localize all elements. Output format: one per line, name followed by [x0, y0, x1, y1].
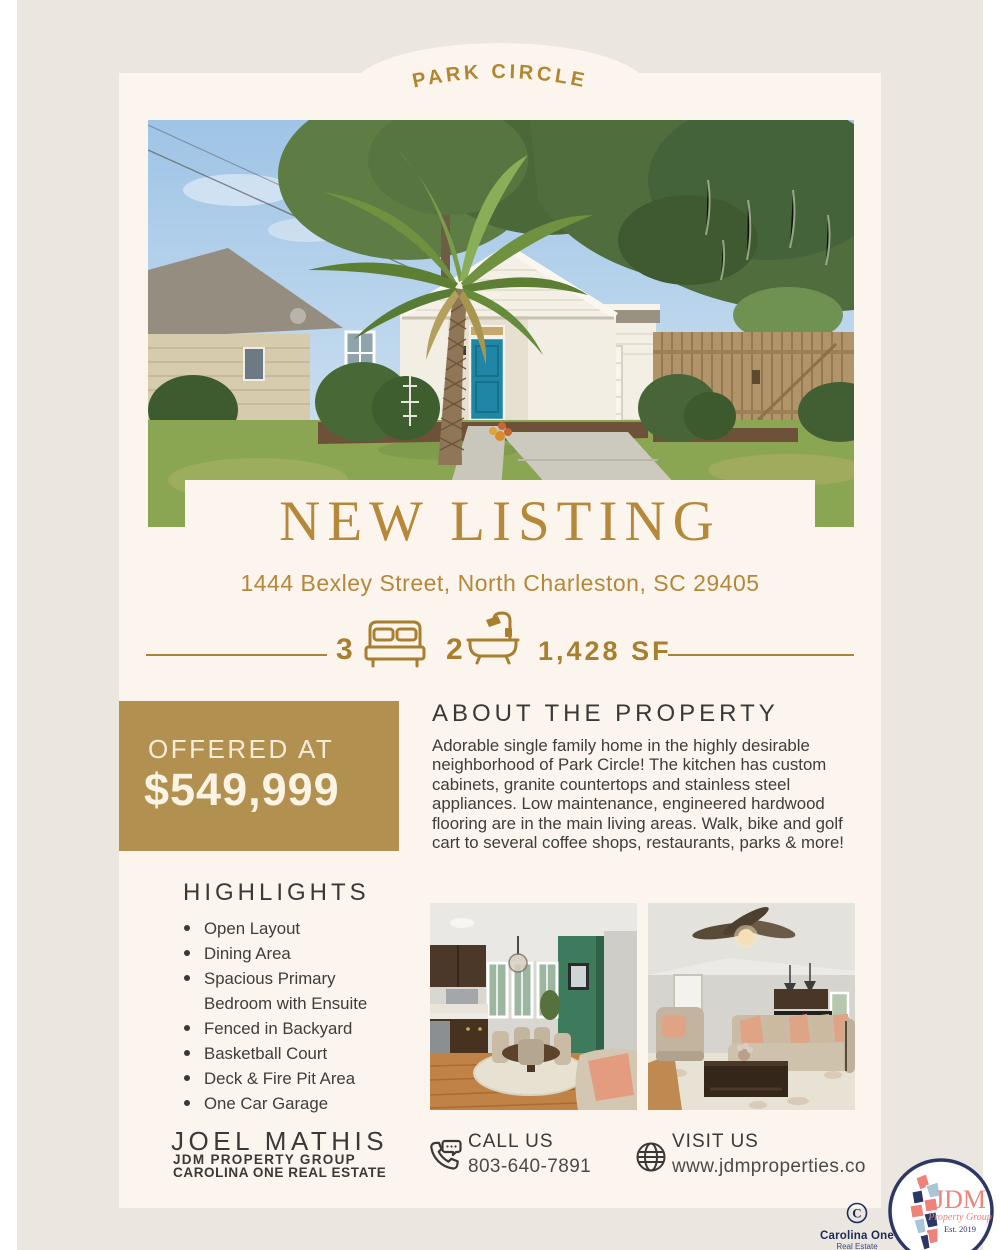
- bath-icon: [464, 608, 522, 668]
- divider-left: [146, 654, 327, 656]
- interior-photo-living: [648, 903, 855, 1110]
- globe-icon: [634, 1140, 668, 1174]
- about-heading: ABOUT THE PROPERTY: [432, 700, 779, 728]
- flyer: PARK CIRCLE: [0, 0, 1000, 1250]
- agent-brokerage: CAROLINA ONE REAL ESTATE: [173, 1165, 386, 1180]
- baths-count: 2: [446, 633, 463, 667]
- listing-address: 1444 Bexley Street, North Charleston, SC…: [0, 570, 1000, 597]
- call-us-label: CALL US: [468, 1131, 554, 1153]
- list-item: Open Layout: [181, 916, 403, 941]
- about-body: Adorable single family home in the highl…: [432, 736, 869, 852]
- price-label: OFFERED AT: [148, 734, 334, 765]
- jdm-sub: Property Group: [927, 1212, 991, 1223]
- jdm-est: Est. 2019: [944, 1224, 976, 1234]
- divider-right: [668, 654, 854, 656]
- neighborhood-banner: PARK CIRCLE: [330, 38, 670, 110]
- price-amount: $549,999: [144, 764, 340, 816]
- jdm-name: JDM: [934, 1185, 986, 1214]
- carolina-one-icon: C: [846, 1202, 868, 1224]
- jdm-logo: JDM Property Group Est. 2019: [886, 1156, 996, 1250]
- armchair: [656, 1007, 704, 1061]
- list-item: Dining Area: [181, 941, 403, 966]
- highlights-list: Open Layout Dining Area Spacious Primary…: [181, 916, 403, 1116]
- price-block: OFFERED AT $549,999: [119, 701, 399, 851]
- phone-icon: [428, 1137, 464, 1173]
- svg-text:PARK CIRCLE: PARK CIRCLE: [410, 61, 589, 92]
- bed-icon: [362, 616, 428, 670]
- sqft-value: 1,428 SF: [538, 636, 672, 667]
- website-url[interactable]: www.jdmproperties.co: [672, 1156, 866, 1178]
- list-item: Deck & Fire Pit Area: [181, 1066, 403, 1091]
- sofa-corner: [575, 1049, 637, 1110]
- list-item: Spacious Primary Bedroom with Ensuite: [181, 966, 403, 1016]
- neighborhood-label: PARK CIRCLE: [410, 61, 589, 92]
- visit-us-label: VISIT US: [672, 1131, 759, 1153]
- list-item: Basketball Court: [181, 1041, 403, 1066]
- svg-text:C: C: [852, 1206, 861, 1221]
- listing-title: NEW LISTING: [0, 493, 1000, 550]
- hero-photo: [148, 120, 854, 527]
- kitchen-cabinets: [430, 945, 488, 1063]
- list-item: Fenced in Backyard: [181, 1016, 403, 1041]
- phone-number[interactable]: 803-640-7891: [468, 1156, 591, 1178]
- beds-count: 3: [336, 633, 353, 667]
- highlights-heading: HIGHLIGHTS: [183, 879, 370, 907]
- interior-photo-dining: [430, 903, 637, 1110]
- list-item: One Car Garage: [181, 1091, 403, 1116]
